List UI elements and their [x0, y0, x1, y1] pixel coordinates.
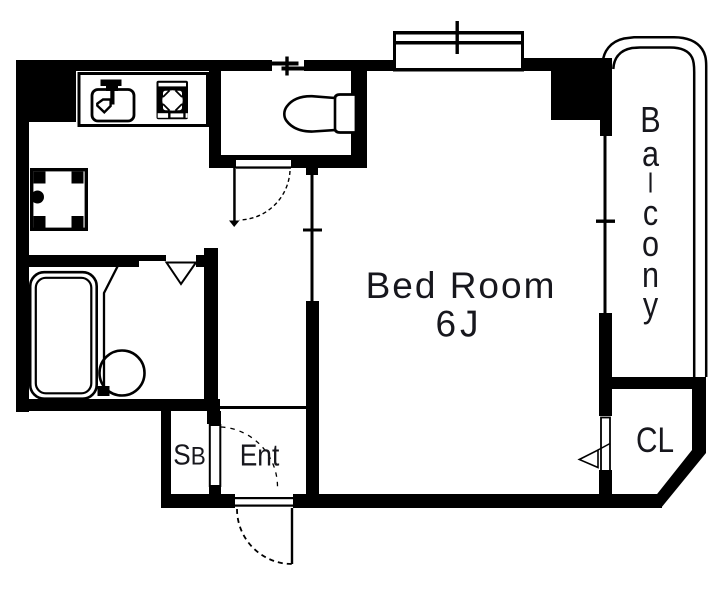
svg-text:CL: CL: [636, 421, 674, 460]
svg-text:Ent: Ent: [240, 439, 280, 473]
svg-text:SB: SB: [173, 438, 205, 471]
svg-text:y: y: [643, 286, 659, 326]
svg-text:6J: 6J: [435, 304, 482, 345]
svg-text:Bed Room: Bed Room: [366, 265, 557, 306]
